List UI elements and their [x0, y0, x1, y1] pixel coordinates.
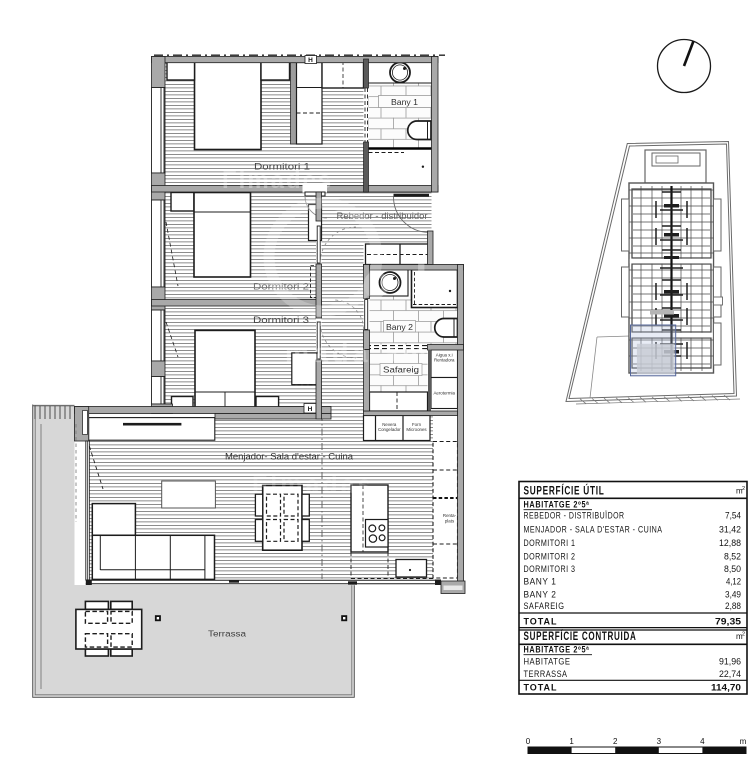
svg-text:Bany 1: Bany 1 [391, 97, 418, 107]
svg-text:SUPERFÍCIE ÚTIL: SUPERFÍCIE ÚTIL [524, 485, 605, 498]
svg-text:Menjador- Sala d'estar - Cuina: Menjador- Sala d'estar - Cuina [225, 452, 353, 462]
svg-text:SUPERFÍCIE CONTRUIDA: SUPERFÍCIE CONTRUIDA [524, 630, 637, 643]
svg-text:SAFAREIG: SAFAREIG [524, 601, 565, 611]
svg-text:2: 2 [742, 632, 745, 638]
svg-text:BANY 1: BANY 1 [524, 577, 557, 587]
svg-text:3: 3 [657, 737, 662, 746]
svg-text:Microones: Microones [406, 427, 427, 432]
svg-text:plats: plats [445, 519, 455, 524]
svg-text:REBEDOR - DISTRIBUÏDOR: REBEDOR - DISTRIBUÏDOR [524, 511, 625, 521]
svg-text:HABITATGE: HABITATGE [524, 657, 571, 667]
svg-text:8,50: 8,50 [724, 564, 741, 574]
svg-text:8,52: 8,52 [724, 552, 741, 562]
svg-text:Terrassa: Terrassa [208, 629, 246, 639]
svg-text:Aerotermia: Aerotermia [433, 391, 455, 396]
svg-text:Fimades: Fimades [222, 167, 333, 194]
svg-text:Congelador: Congelador [378, 427, 401, 432]
svg-text:TERRASSA: TERRASSA [524, 669, 568, 679]
svg-text:91,96: 91,96 [719, 657, 741, 667]
svg-text:DORMITORI 2: DORMITORI 2 [524, 552, 576, 562]
svg-text:79,35: 79,35 [715, 617, 742, 628]
svg-text:HABITATGE 2º5ª: HABITATGE 2º5ª [524, 645, 590, 655]
svg-text:0: 0 [526, 737, 531, 746]
svg-text:Fimadas: Fimadas [252, 471, 374, 499]
svg-text:H: H [308, 406, 313, 413]
svg-text:7,54: 7,54 [725, 511, 741, 521]
svg-text:114,70: 114,70 [711, 683, 741, 694]
svg-text:2: 2 [742, 486, 745, 492]
svg-text:DORMITORI 1: DORMITORI 1 [524, 538, 576, 548]
svg-text:DORMITORI 3: DORMITORI 3 [524, 564, 576, 574]
svg-text:Rentadora: Rentadora [434, 358, 455, 363]
svg-text:2: 2 [613, 737, 618, 746]
svg-text:TOTAL: TOTAL [524, 683, 558, 694]
svg-text:m: m [740, 737, 747, 746]
svg-text:Bany 2: Bany 2 [386, 322, 413, 332]
svg-text:H: H [308, 57, 313, 64]
svg-text:HABITATGE 2º5ª: HABITATGE 2º5ª [524, 500, 590, 510]
svg-text:22,74: 22,74 [719, 669, 741, 679]
svg-text:o b: o b [362, 255, 449, 307]
svg-text:mada am: mada am [285, 338, 430, 368]
svg-text:31,42: 31,42 [719, 525, 741, 535]
svg-text:BANY 2: BANY 2 [524, 590, 557, 600]
svg-text:Renta-: Renta- [443, 513, 457, 518]
svg-text:MENJADOR - SALA D'ESTAR - CUIN: MENJADOR - SALA D'ESTAR - CUINA [524, 525, 663, 535]
svg-text:12,88: 12,88 [719, 538, 741, 548]
svg-text:4: 4 [700, 737, 705, 746]
svg-text:3,49: 3,49 [725, 590, 741, 600]
svg-text:1: 1 [569, 737, 574, 746]
svg-text:TOTAL: TOTAL [524, 617, 558, 628]
svg-text:Dormitori 3: Dormitori 3 [253, 315, 309, 325]
svg-text:4,12: 4,12 [726, 577, 741, 587]
svg-text:2,88: 2,88 [725, 601, 741, 611]
